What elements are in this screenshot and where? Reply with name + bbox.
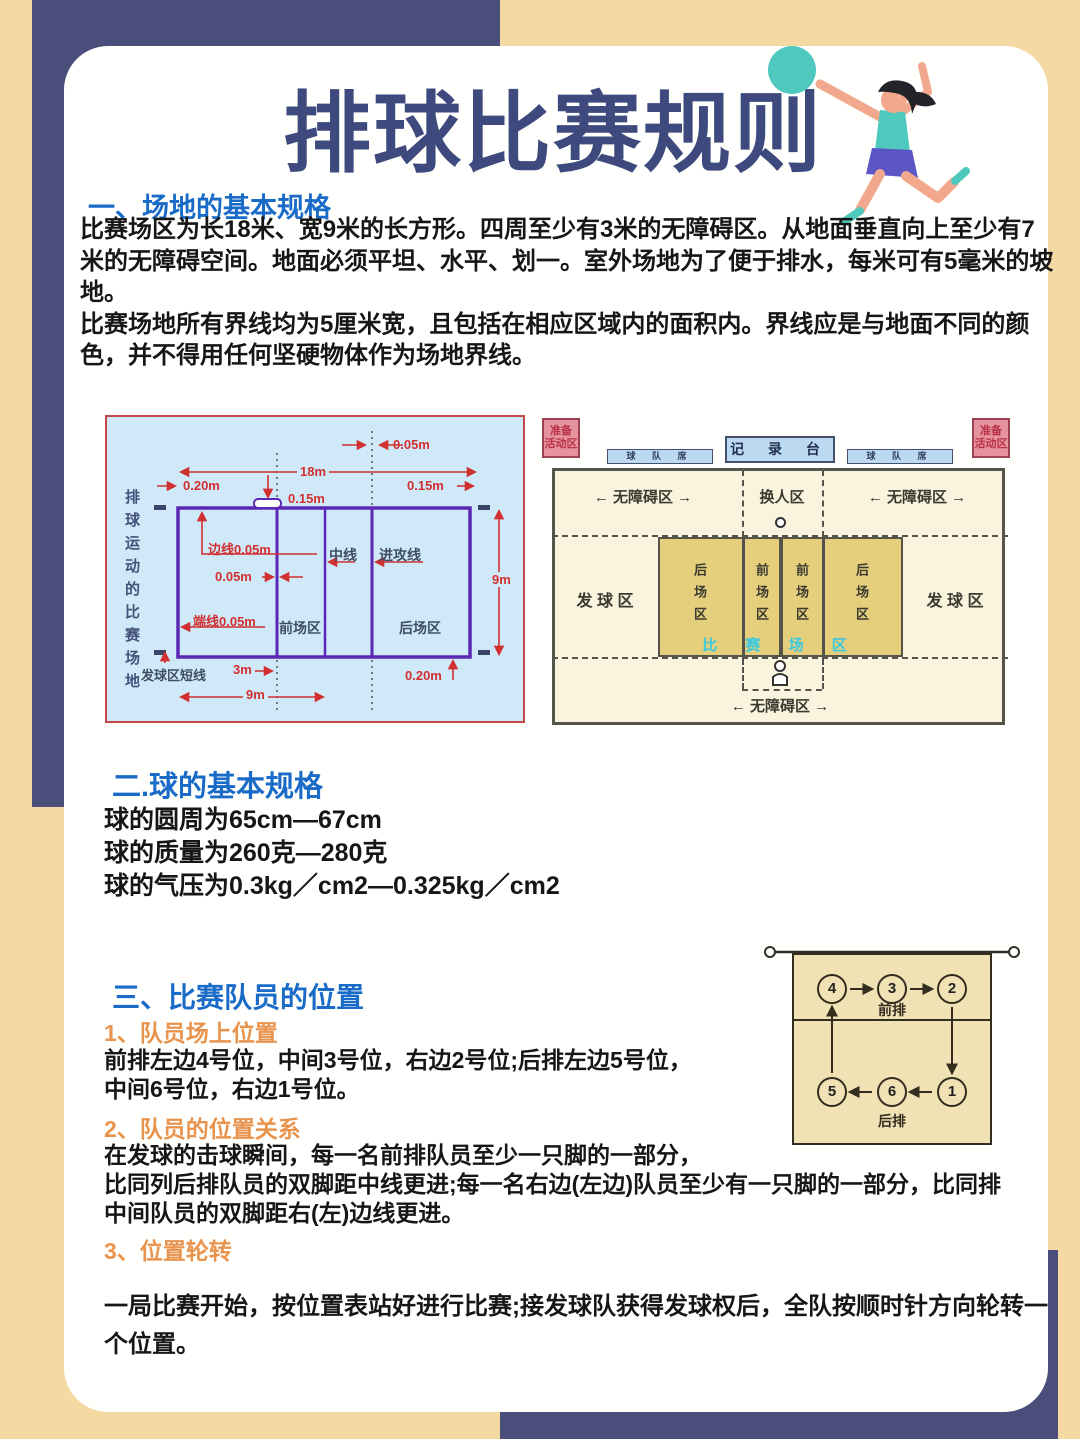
dim-net-width: 0.15m (288, 491, 325, 506)
rotation-diagram: 4 3 2 5 6 1 前排 后排 (760, 933, 1024, 1161)
substitution-dash-right (822, 470, 824, 537)
court-overview-diagram: 准备 活动区 准备 活动区 球 队 席 球 队 席 记 录 台 ← 无障碍区 →… (540, 413, 1012, 728)
position-1: 1 (937, 1077, 967, 1107)
referee-icon (766, 659, 794, 687)
field-text-line: 比赛场区为长18米、宽9米的长方形。四周至少有3米的无障碍区。从地面垂直向上至少… (80, 214, 1053, 246)
referee-dash-right (822, 659, 824, 689)
referee-dash-bottom (742, 689, 822, 691)
position-4: 4 (817, 974, 847, 1004)
court-diagram-side-caption: 排球运动的比赛场地 (121, 489, 142, 696)
scorer-table-box: 记 录 台 (725, 436, 835, 463)
playing-court-label: 比 赛 场 区 (658, 634, 903, 655)
warmup-area-box-left: 准备 活动区 (542, 418, 580, 458)
free-zone-label-bottom: ← 无障碍区 → (690, 695, 870, 716)
dim-margin-bottom: 0.20m (405, 668, 442, 683)
field-text-line: 色，并不得用任何坚硬物体作为场地界线。 (80, 340, 1053, 372)
position-2: 2 (937, 974, 967, 1004)
dim-attack-dist: 3m (233, 662, 252, 677)
label-center-line: 中线 (329, 545, 357, 565)
service-zone-label-left: 发 球 区 (560, 587, 650, 611)
ball-spec-line: 球的气压为0.3kg／cm2—0.325kg／cm2 (104, 870, 560, 903)
free-zone-label-left: ← 无障碍区 → (558, 486, 728, 507)
free-zone-label-right: ← 无障碍区 → (832, 486, 1002, 507)
label-attack-line: 进攻线 (379, 545, 421, 565)
field-text-line: 地。 (80, 277, 1053, 309)
ball-spec-line: 球的质量为260克—280克 (104, 837, 560, 870)
section-field-paragraph: 比赛场区为长18米、宽9米的长方形。四周至少有3米的无障碍区。从地面垂直向上至少… (80, 214, 1053, 372)
substitution-zone-label: 换人区 (742, 486, 822, 507)
sub1-body: 前排左边4号位，中间3号位，右边2号位;后排左边5号位， 中间6号位，右边1号位… (104, 1046, 692, 1104)
sub3-heading: 3、位置轮转 (104, 1232, 232, 1266)
label-back-zone: 后场区 (399, 618, 441, 638)
dim-court-length: 18m (297, 464, 329, 479)
label-front-zone: 前场区 (279, 618, 321, 638)
dim-line-width: 0.05m (215, 569, 252, 584)
sub3-body: 一局比赛开始，按位置表站好进行比赛;接发球队获得发球权后，全队按顺时针方向轮转一… (104, 1288, 1048, 1364)
label-sideline: 边线0.05m (208, 539, 271, 558)
warmup-area-box-right: 准备 活动区 (972, 418, 1010, 458)
dim-margin-left: 0.20m (183, 478, 220, 493)
volleyball-player-illustration (742, 40, 992, 235)
section-positions-heading: 三、比赛队员的位置 (112, 976, 364, 1016)
section-ball-heading: 二.球的基本规格 (112, 763, 323, 805)
field-text-line: 米的无障碍空间。地面必须平坦、水平、划一。室外场地为了便于排水，每米可有5毫米的… (80, 246, 1053, 278)
dim-margin-right: 0.15m (407, 478, 444, 493)
team-bench-left: 球 队 席 (607, 449, 713, 464)
front-zone-label-left: 前场区 (752, 563, 771, 629)
dim-half-length: 9m (243, 687, 268, 702)
volleyball-icon (768, 46, 816, 94)
dim-court-width: 9m (489, 572, 514, 587)
label-service-short-line: 发球区短线 (141, 665, 206, 684)
team-bench-right: 球 队 席 (847, 449, 953, 464)
service-zone-label-right: 发 球 区 (910, 587, 1000, 611)
back-zone-label-right: 后场区 (852, 563, 871, 629)
position-6: 6 (877, 1077, 907, 1107)
front-zone-label-right: 前场区 (792, 563, 811, 629)
sub2-heading: 2、队员的位置关系 (104, 1110, 301, 1144)
back-zone-label-left: 后场区 (690, 563, 709, 629)
position-5: 5 (817, 1077, 847, 1107)
sub1-heading: 1、队员场上位置 (104, 1014, 278, 1048)
back-row-label: 后排 (862, 1111, 922, 1131)
volleyball-rules-poster: { "colors": { "page_bg": "#f4d9a2", "acc… (0, 0, 1080, 1439)
section-ball-list: 球的圆周为65cm—67cm 球的质量为260克—280克 球的气压为0.3kg… (104, 804, 560, 903)
net-post-right (1009, 947, 1019, 957)
net-post-left (765, 947, 775, 957)
field-text-line: 比赛场地所有界线均为5厘米宽，且包括在相应区域内的面积内。界线应是与地面不同的颜 (80, 309, 1053, 341)
dim-line-gap: 0.05m (393, 437, 430, 452)
label-endline: 端线0.05m (193, 611, 256, 630)
referee-dash-left (742, 659, 744, 689)
court-dimension-diagram: 排球运动的比赛场地 0.05m 18m 0.20m 0.15m 0.15m 边线… (105, 415, 525, 723)
net-post-marker (775, 517, 786, 528)
front-row-label: 前排 (862, 1000, 922, 1020)
ball-spec-line: 球的圆周为65cm—67cm (104, 804, 560, 837)
